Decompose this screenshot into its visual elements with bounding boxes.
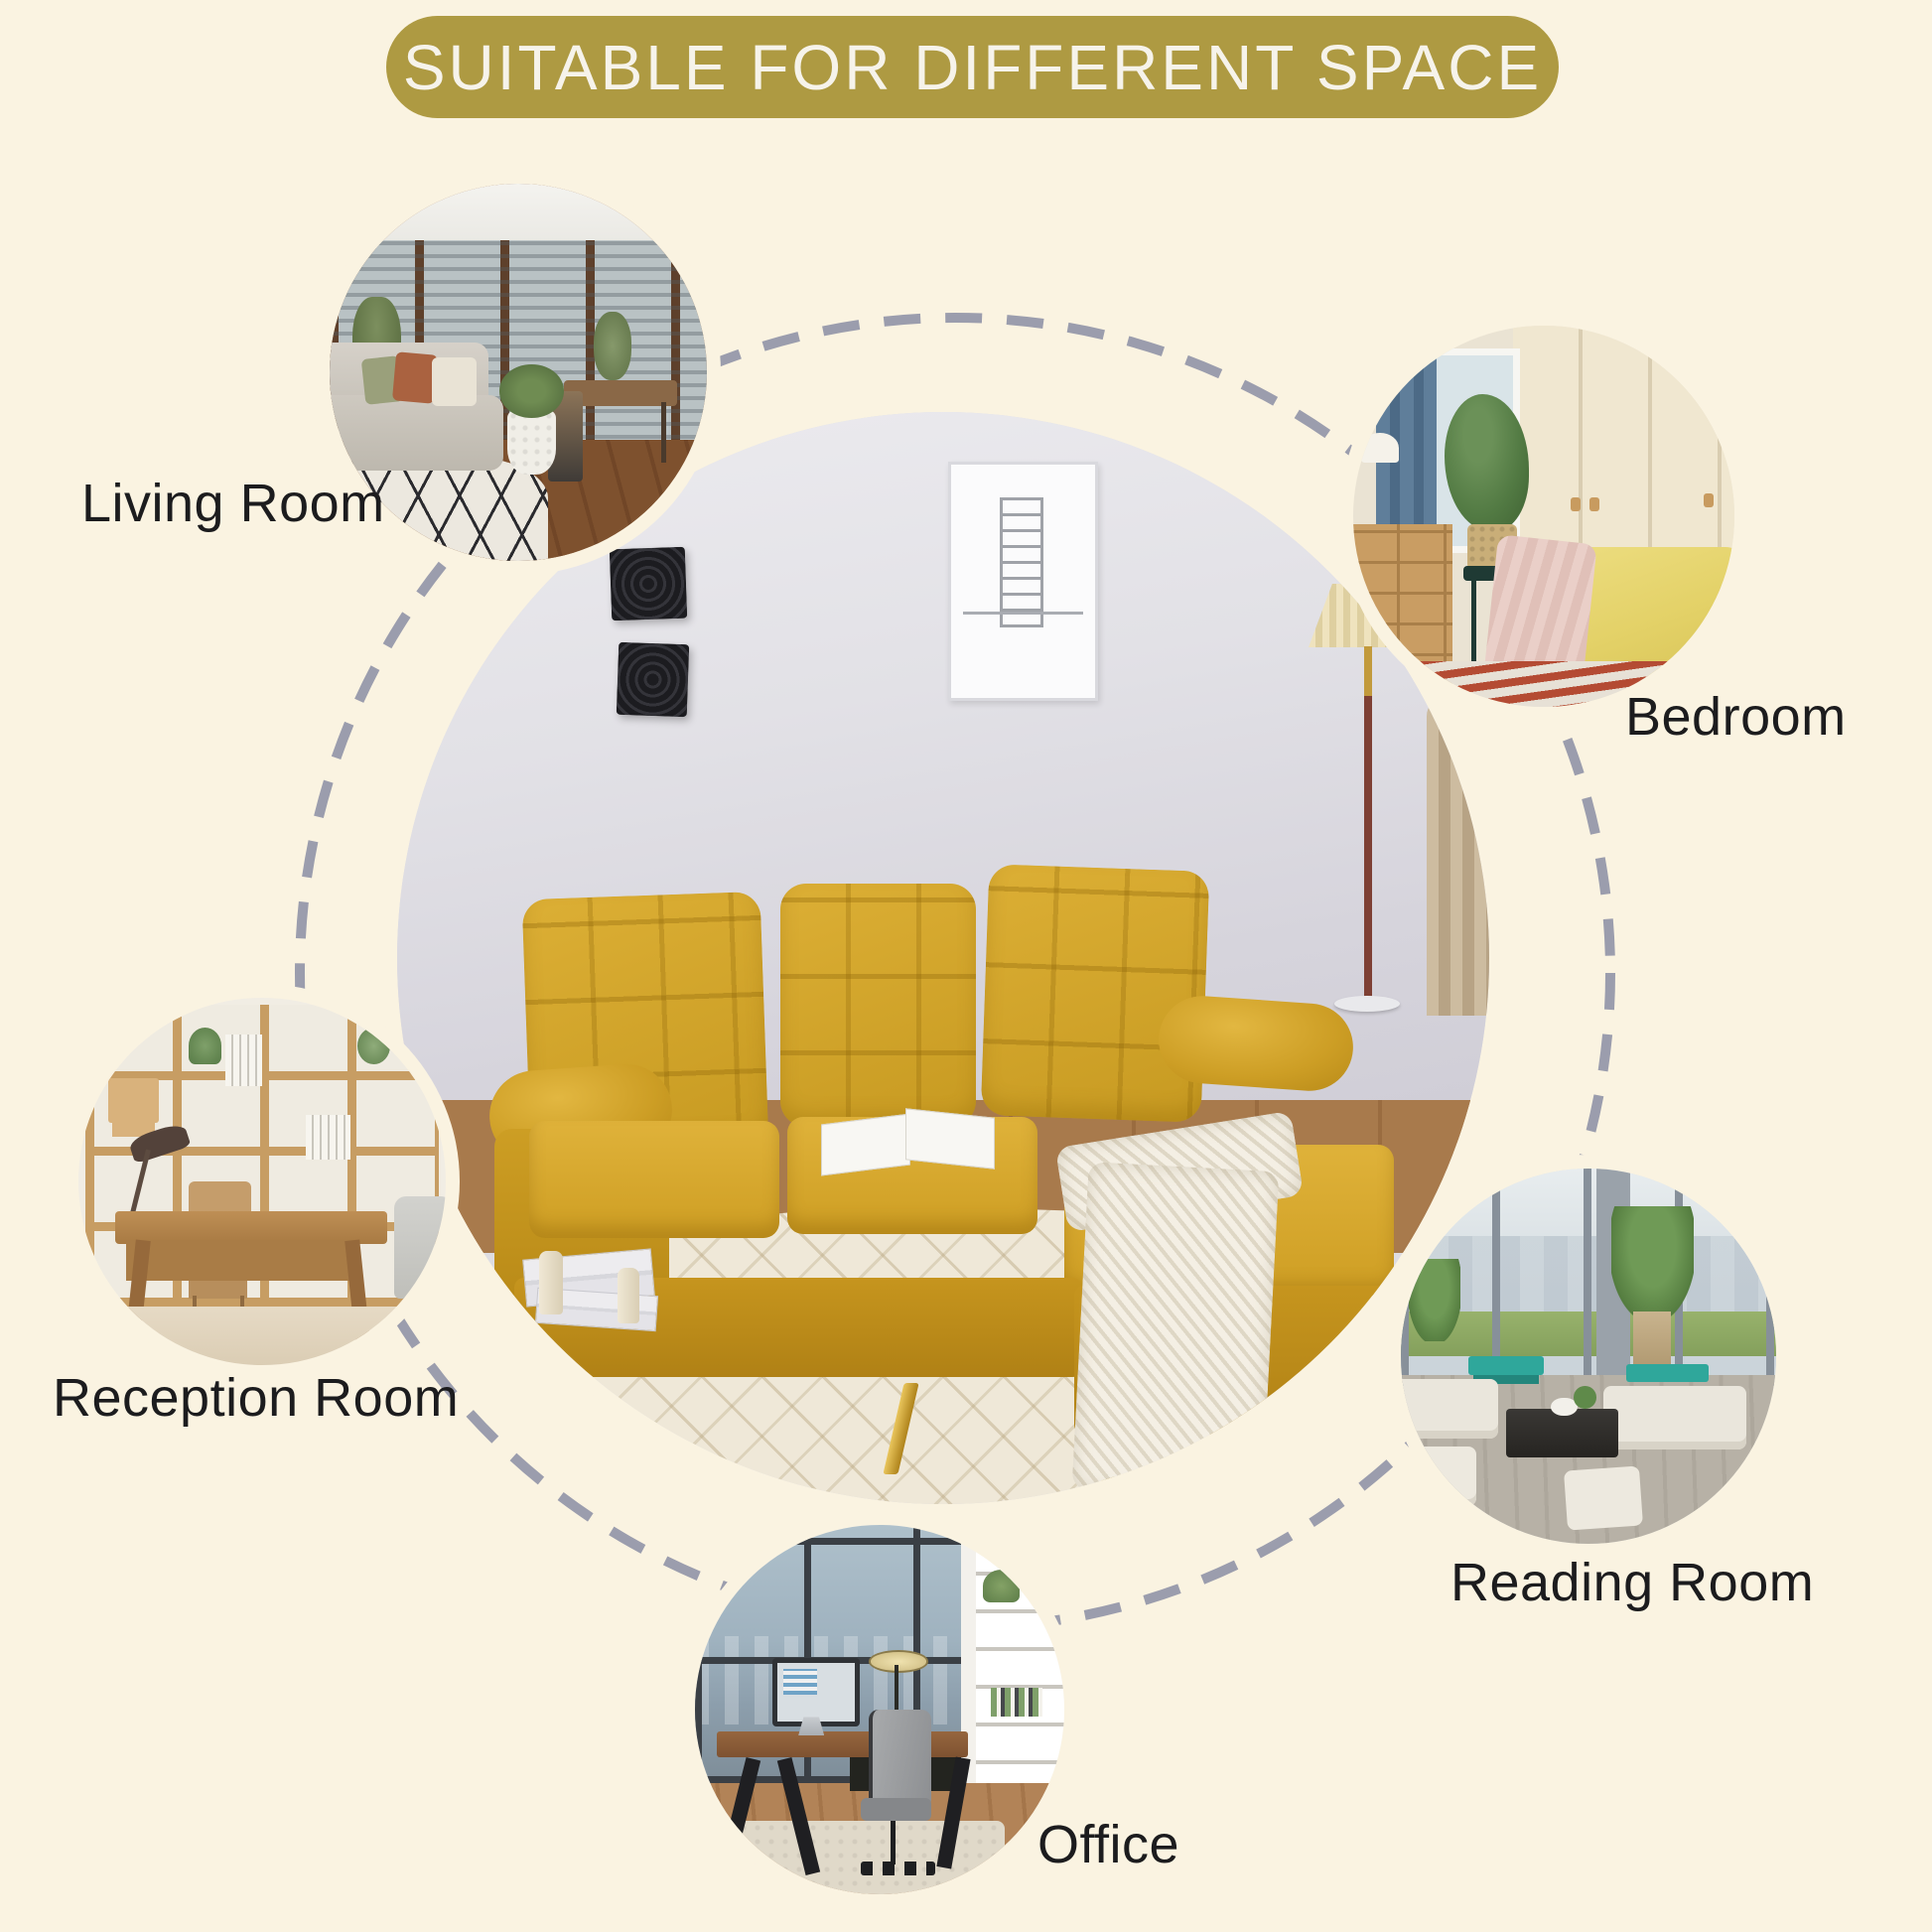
floor	[78, 1307, 446, 1365]
reception-room-label: Reception Room	[53, 1367, 459, 1429]
sofa-back-cushion-middle	[780, 884, 976, 1127]
title-banner: SUITABLE FOR DIFFERENT SPACE	[386, 16, 1559, 118]
plant	[594, 312, 631, 379]
wall-art-square-bottom	[617, 642, 690, 717]
open-book-right-page	[905, 1108, 995, 1169]
living-room-label: Living Room	[81, 473, 385, 534]
bedroom-label: Bedroom	[1625, 686, 1847, 748]
chair-seat	[189, 1281, 247, 1300]
sofa-arm-right	[1156, 993, 1356, 1093]
wood-desk-top	[115, 1211, 387, 1244]
shelf-books	[991, 1688, 1042, 1718]
throw-blanket-drape	[1071, 1162, 1279, 1499]
candlestick	[539, 1251, 563, 1314]
white-armchair	[1409, 1447, 1476, 1506]
office-chair-back	[869, 1710, 932, 1806]
storage-boxes	[108, 1078, 160, 1122]
indoor-tree	[1409, 1259, 1461, 1341]
wood-dresser	[1353, 524, 1452, 684]
chair-wheelbase	[861, 1862, 934, 1876]
chair-back	[189, 1181, 251, 1211]
tree-planter	[1633, 1311, 1671, 1364]
books	[306, 1115, 349, 1159]
books	[225, 1035, 262, 1086]
gray-sofa-seat	[330, 395, 503, 471]
wardrobe-handle	[1571, 497, 1581, 511]
desk-front	[126, 1240, 353, 1281]
candlestick	[618, 1268, 639, 1323]
shelf-plant	[357, 1028, 390, 1064]
mushroom-lamp	[1361, 433, 1399, 464]
basket-plant	[499, 364, 564, 417]
white-sofa	[1603, 1386, 1746, 1449]
reception-room-photo	[78, 998, 446, 1365]
sofa-seat-left	[529, 1121, 779, 1238]
central-sofa-photo	[397, 412, 1489, 1504]
teal-bench	[1468, 1356, 1544, 1375]
picture-frame	[948, 462, 1098, 701]
shelf-plant	[189, 1028, 221, 1064]
curtain	[1427, 698, 1489, 1016]
white-armchair	[1564, 1466, 1643, 1532]
teal-bench	[1626, 1364, 1709, 1383]
open-book-left-page	[821, 1113, 910, 1175]
bedroom-photo	[1353, 326, 1734, 707]
living-room-photo	[330, 184, 707, 561]
shelf-plant	[983, 1570, 1020, 1602]
table-plant	[1574, 1386, 1596, 1409]
wardrobe-handle	[1589, 497, 1599, 511]
floor-lamp-base	[1334, 996, 1400, 1012]
pillow	[432, 357, 478, 406]
black-coffee-table	[1506, 1409, 1618, 1457]
floor-lamp-pole	[1364, 646, 1372, 1002]
product-infographic: SUITABLE FOR DIFFERENT SPACE	[0, 0, 1932, 1932]
office-chair-seat	[861, 1798, 931, 1820]
title-text: SUITABLE FOR DIFFERENT SPACE	[403, 31, 1542, 104]
reading-room-photo	[1401, 1169, 1776, 1544]
woven-basket	[507, 410, 556, 475]
reading-room-label: Reading Room	[1450, 1552, 1814, 1613]
pillow-rust	[392, 351, 438, 404]
screen-content	[783, 1669, 816, 1695]
indoor-tree	[1611, 1206, 1694, 1318]
white-sofa	[1401, 1379, 1498, 1439]
sofa-back-cushion-right	[981, 864, 1210, 1123]
office-photo	[695, 1525, 1064, 1894]
gray-armchair	[394, 1196, 446, 1300]
office-label: Office	[1037, 1814, 1179, 1875]
